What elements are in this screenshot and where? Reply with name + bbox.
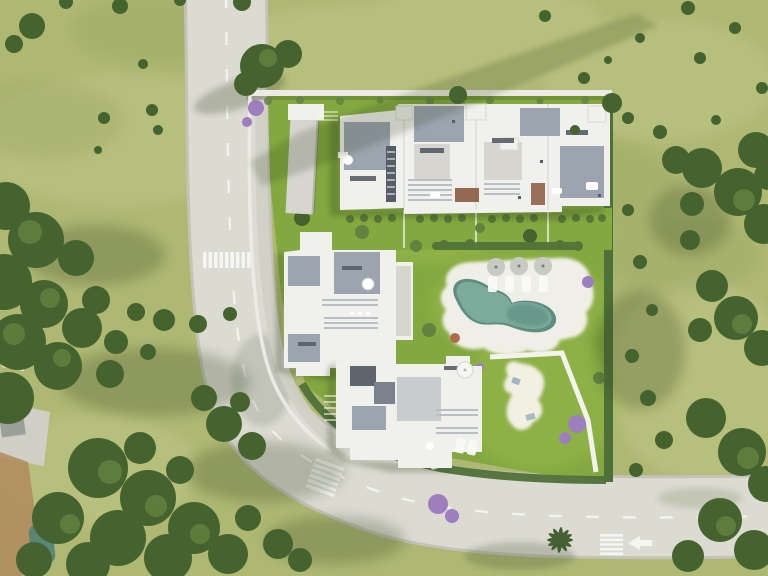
parasol <box>534 257 552 275</box>
wood-pergola <box>455 188 479 202</box>
parasols <box>487 257 552 276</box>
wood-pergola <box>531 183 545 205</box>
crosswalk-north <box>203 252 251 268</box>
aerial-render-stage <box>0 0 768 576</box>
site-plan-aerial-view <box>0 0 768 576</box>
parasol <box>510 257 528 275</box>
flowering-bush <box>450 333 460 343</box>
parasol <box>487 258 505 276</box>
boundary-tree <box>449 86 467 104</box>
boundary-tree <box>602 93 622 113</box>
pool-garden-bush <box>422 323 436 337</box>
purple-bush <box>582 276 594 288</box>
building-block-west <box>276 232 413 380</box>
stair-strip <box>386 146 396 202</box>
